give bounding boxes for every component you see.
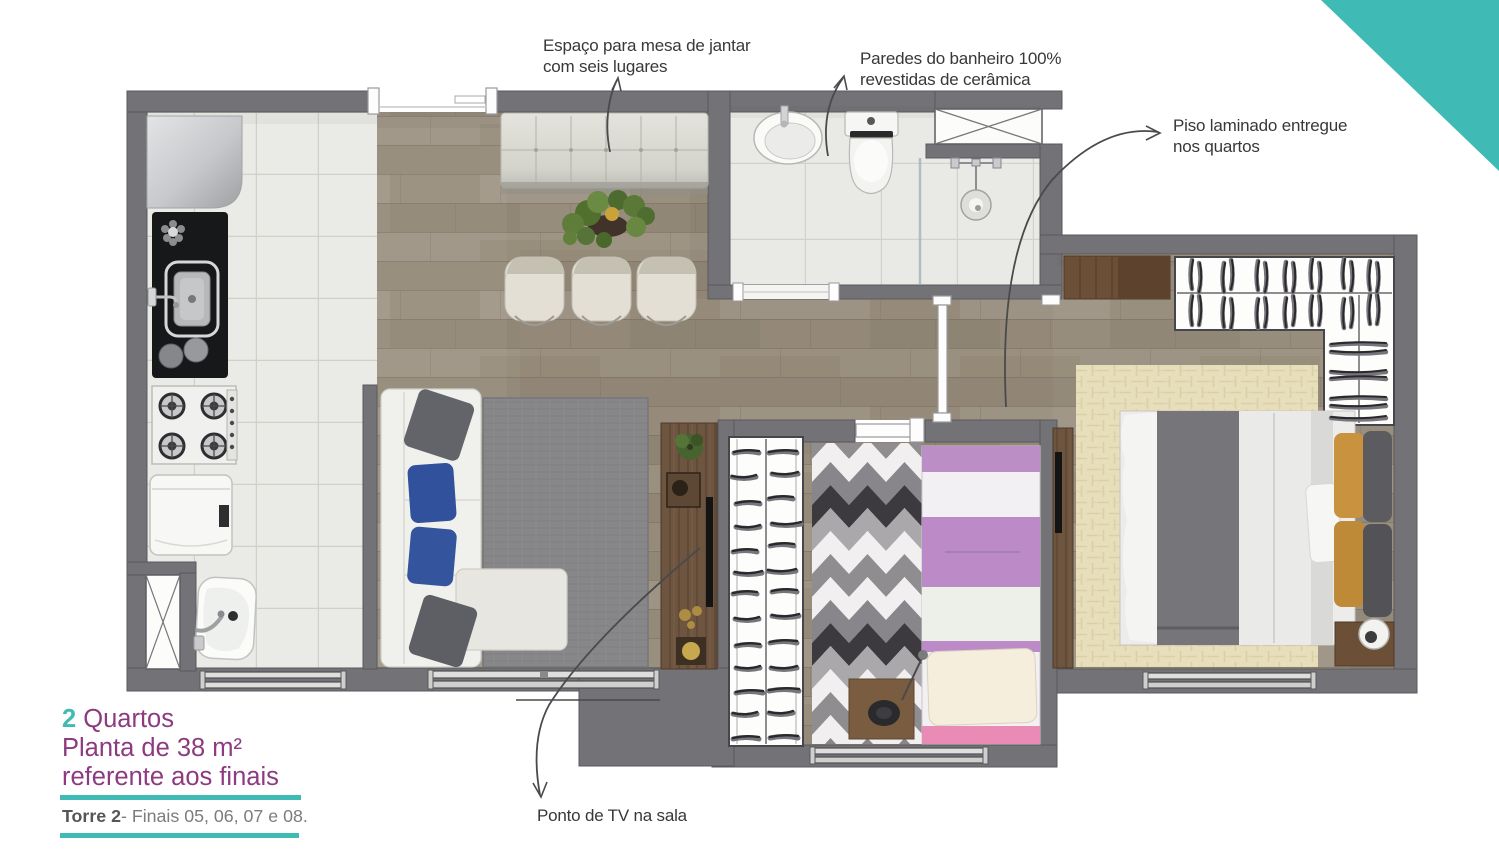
svg-text:com seis lugares: com seis lugares: [543, 57, 667, 76]
svg-text:Piso laminado entregue: Piso laminado entregue: [1173, 116, 1347, 135]
svg-text:Planta de 38 m²: Planta de 38 m²: [62, 734, 242, 762]
svg-text:revestidas de cerâmica: revestidas de cerâmica: [860, 70, 1031, 89]
svg-text:Torre 2- Finais 05, 06, 07 e 0: Torre 2- Finais 05, 06, 07 e 08.: [62, 806, 308, 826]
svg-text:nos quartos: nos quartos: [1173, 137, 1260, 156]
svg-text:2 Quartos: 2 Quartos: [62, 705, 174, 733]
svg-text:Paredes do banheiro 100%: Paredes do banheiro 100%: [860, 49, 1061, 68]
svg-text:Ponto de TV na sala: Ponto de TV na sala: [537, 806, 688, 825]
svg-text:referente aos finais: referente aos finais: [62, 763, 279, 791]
svg-text:Espaço para mesa de jantar: Espaço para mesa de jantar: [543, 36, 751, 55]
